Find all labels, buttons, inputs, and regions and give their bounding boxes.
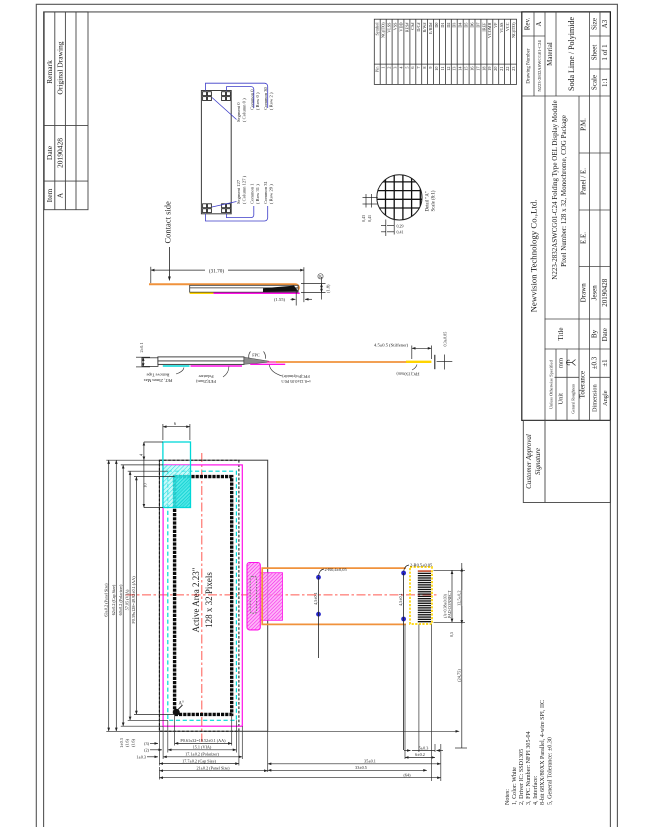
svg-text:4, Interface:: 4, Interface: [532,775,539,805]
svg-text:(64): (64) [404,773,412,778]
svg-text:0.3±0.05: 0.3±0.05 [442,332,447,347]
svg-text:22: 22 [505,67,510,71]
svg-text:D7: D7 [475,23,480,28]
svg-text:8: 8 [422,67,427,69]
svg-text:Common 0: Common 0 [250,89,255,110]
svg-text:(2): (2) [144,748,149,753]
svg-text:Common 31: Common 31 [263,180,268,204]
svg-text:R/W#: R/W# [422,22,427,33]
svg-text:57.05 (VIA): 57.05 (VIA) [125,589,130,610]
svg-text:VDD: VDD [398,23,403,32]
svg-text:CS#: CS# [410,22,415,30]
svg-text:E.E.: E.E. [580,232,588,244]
svg-text:17: 17 [475,67,480,71]
svg-text:Size: Size [590,18,598,30]
svg-text:3, FPC Number: NFPI 305-04: 3, FPC Number: NFPI 305-04 [526,731,532,805]
svg-text:±1: ±1 [601,359,609,367]
svg-text:( Column 127 ): ( Column 127 ) [241,175,246,204]
svg-text:Sheet: Sheet [590,45,598,61]
svg-text:P0.39x128=49.92±0.1 (AA): P0.39x128=49.92±0.1 (AA) [131,576,136,624]
svg-text:D0: D0 [434,23,439,28]
svg-text:15.1 (VIA): 15.1 (VIA) [193,745,212,750]
svg-text:PAD CONNECT: PAD CONNECT [447,590,452,618]
svg-text:Common 30: Common 30 [263,86,268,110]
svg-text:PET(25um): PET(25um) [196,379,216,384]
svg-text:2, Driver IC: SSD1305: 2, Driver IC: SSD1305 [519,749,525,805]
svg-text:6±0.2: 6±0.2 [415,752,425,757]
svg-text:5±0.3: 5±0.3 [419,745,429,750]
svg-text:13: 13 [452,67,457,71]
svg-text:D3: D3 [452,23,457,28]
svg-text:Angle: Angle [602,390,609,406]
svg-text:12: 12 [446,67,451,71]
svg-text:VCOMH: VCOMH [487,23,492,39]
svg-text:FPC(Polyimide): FPC(Polyimide) [282,374,310,379]
svg-text:Unit: Unit [558,393,565,405]
svg-text:Item: Item [45,188,54,202]
svg-text:2±0.1: 2±0.1 [139,342,144,352]
svg-text:A: A [56,192,65,198]
svg-text:Signature: Signature [534,448,542,475]
svg-text:7: 7 [416,67,421,69]
svg-text:(1.8): (1.8) [326,284,331,293]
svg-text:62±0.2 (Cap Size): 62±0.2 (Cap Size) [111,584,116,615]
svg-text:15: 15 [464,67,469,71]
svg-text:11: 11 [440,67,445,71]
svg-text:Tolerance: Tolerance [579,371,587,399]
svg-text:(3): (3) [144,741,149,746]
svg-text:IREF: IREF [481,22,486,32]
svg-text:Newvision Technology Co.,Ltd.: Newvision Technology Co.,Ltd. [529,200,539,313]
svg-text:60±0.2 (Polarizer): 60±0.2 (Polarizer) [118,584,123,615]
svg-text:Segment 127: Segment 127 [236,179,241,204]
svg-text:Unless Otherwise Specified: Unless Otherwise Specified [548,359,553,409]
svg-text:3: 3 [392,67,397,69]
svg-text:Contact side: Contact side [163,201,173,243]
svg-text:D6: D6 [470,23,475,28]
svg-text:Pixel Number: 128 x 32, Monoch: Pixel Number: 128 x 32, Monochrome, COG … [560,115,568,267]
svg-text:(31.70): (31.70) [209,267,224,274]
svg-text:20190428: 20190428 [601,278,609,307]
svg-text:t=0.12±0.05 P0.5: t=0.12±0.05 P0.5 [281,379,310,384]
svg-text:Polarizer: Polarizer [198,374,214,379]
svg-text:Soda Lime / Polyimide: Soda Lime / Polyimide [567,17,576,91]
svg-text:D2: D2 [446,23,451,28]
svg-text:N223-2832ASWCG01-C24 Folding T: N223-2832ASWCG01-C24 Folding Type OEL Di… [551,100,559,279]
svg-text:Date: Date [45,145,54,160]
svg-text:D4: D4 [458,22,463,28]
svg-text:( Row 31 ): ( Row 31 ) [255,184,260,204]
svg-text:Scale (8:1): Scale (8:1) [431,190,436,211]
svg-text:Segment 0: Segment 0 [236,102,241,122]
svg-text:23: 23 [511,67,516,71]
svg-text:Remark: Remark [45,60,54,84]
svg-text:A°: A° [179,702,184,707]
svg-text:( Row 2 ): ( Row 2 ) [268,92,273,110]
svg-text:N223-2832ASWCG01-C24: N223-2832ASWCG01-C24 [537,40,542,92]
svg-text:19: 19 [487,67,492,71]
svg-text:16: 16 [470,67,475,71]
svg-text:4.5±0.5 (Stiffener): 4.5±0.5 (Stiffener) [374,343,409,348]
svg-text:RES#: RES# [404,22,409,33]
svg-text:Common 1: Common 1 [250,183,255,204]
svg-text:VLSS: VLSS [387,22,392,33]
svg-text:21±0.2 (Panel Size): 21±0.2 (Panel Size) [196,766,230,771]
svg-text:FPC(150mm): FPC(150mm) [396,372,420,377]
svg-text:Detail "A": Detail "A" [426,191,431,211]
svg-text:By: By [590,329,598,338]
svg-text:21: 21 [499,67,504,71]
svg-text:A: A [535,21,543,26]
svg-text:mm: mm [558,358,565,368]
svg-text:2: 2 [387,67,392,69]
svg-text:Pin: Pin [375,66,380,72]
svg-text:8-bit 68XX/80XX Parallel, 4-wi: 8-bit 68XX/80XX Parallel, 4-wire SPI, II… [540,700,546,805]
svg-text:Rev.: Rev. [524,17,532,30]
svg-text:33±0.5: 33±0.5 [355,765,367,770]
svg-text:(1.55): (1.55) [274,297,286,302]
svg-text:NC(ITO): NC(ITO) [511,22,516,38]
svg-text:D1: D1 [440,23,445,28]
svg-text:Date: Date [601,328,609,341]
svg-text:Drawing Number: Drawing Number [527,48,532,83]
svg-text:( Row 29 ): ( Row 29 ) [268,184,273,204]
svg-text:20190428: 20190428 [56,138,65,168]
svg-text:Customer Approval: Customer Approval [525,434,533,489]
svg-text:Symbol: Symbol [375,22,380,36]
svg-text:Dimension: Dimension [591,384,598,412]
svg-text:9: 9 [428,67,433,69]
svg-text:General Roughness: General Roughness [572,383,576,413]
svg-text:1±0.3: 1±0.3 [136,755,146,760]
svg-text:10: 10 [434,67,439,71]
svg-text:18: 18 [481,67,486,71]
svg-text:Drawn: Drawn [580,283,588,303]
svg-text:Title: Title [557,328,565,341]
svg-text:Remove Tape: Remove Tape [146,373,169,378]
svg-text:( Row 0 ): ( Row 0 ) [255,92,260,110]
svg-text:A3: A3 [601,19,609,28]
svg-text:5: 5 [404,67,409,69]
svg-text:±0.3: ±0.3 [590,356,598,369]
svg-text:17.7±0.2 (Cap Size): 17.7±0.2 (Cap Size) [182,758,216,763]
svg-text:Notes:: Notes: [505,789,511,805]
svg-text:1 of 1: 1 of 1 [601,44,609,61]
svg-text:P0.61x32=19.52±0.1 (AA): P0.61x32=19.52±0.1 (AA) [180,738,226,743]
svg-text:( Column 0 ): ( Column 0 ) [241,98,246,122]
svg-text:(1.6): (1.6) [125,738,130,747]
svg-text:Scale: Scale [590,75,598,90]
svg-text:Material: Material [546,42,554,66]
svg-text:1: 1 [381,67,386,69]
svg-text:1:1: 1:1 [601,78,609,87]
svg-text:35±0.1: 35±0.1 [364,759,376,764]
svg-text:5, General Tolerance: ±0.30: 5, General Tolerance: ±0.30 [548,737,554,805]
svg-text:D5: D5 [464,23,469,28]
svg-text:(1.6): (1.6) [130,738,135,747]
svg-text:1, Color: White: 1, Color: White [512,767,518,805]
svg-text:D/C#: D/C# [416,22,421,32]
svg-text:Panel / E.: Panel / E. [580,168,588,195]
svg-text:Jesen: Jesen [590,285,598,301]
svg-text:P.M.: P.M. [580,118,588,131]
svg-text:VSS: VSS [392,22,397,30]
svg-text:20: 20 [493,67,498,71]
svg-text:1±0.3: 1±0.3 [119,738,124,748]
svg-text:Active Area 2.23": Active Area 2.23" [191,567,201,632]
svg-text:NC(ITO): NC(ITO) [381,22,386,38]
svg-text:6: 6 [410,67,415,69]
svg-text:Original Drawing: Original Drawing [56,41,65,94]
svg-text:128 x 32 Pixels: 128 x 32 Pixels [204,572,214,628]
svg-text:VP: VP [493,22,498,28]
svg-text:VCC: VCC [505,22,510,31]
svg-text:FPC: FPC [252,353,260,358]
svg-text:E/RD#: E/RD# [428,22,433,35]
svg-text:17.1±0.2 (Polarizer): 17.1±0.2 (Polarizer) [185,752,219,757]
svg-text:63±0.2 (Panel Size): 63±0.2 (Panel Size) [103,583,108,617]
svg-text:VLSS: VLSS [499,22,504,33]
